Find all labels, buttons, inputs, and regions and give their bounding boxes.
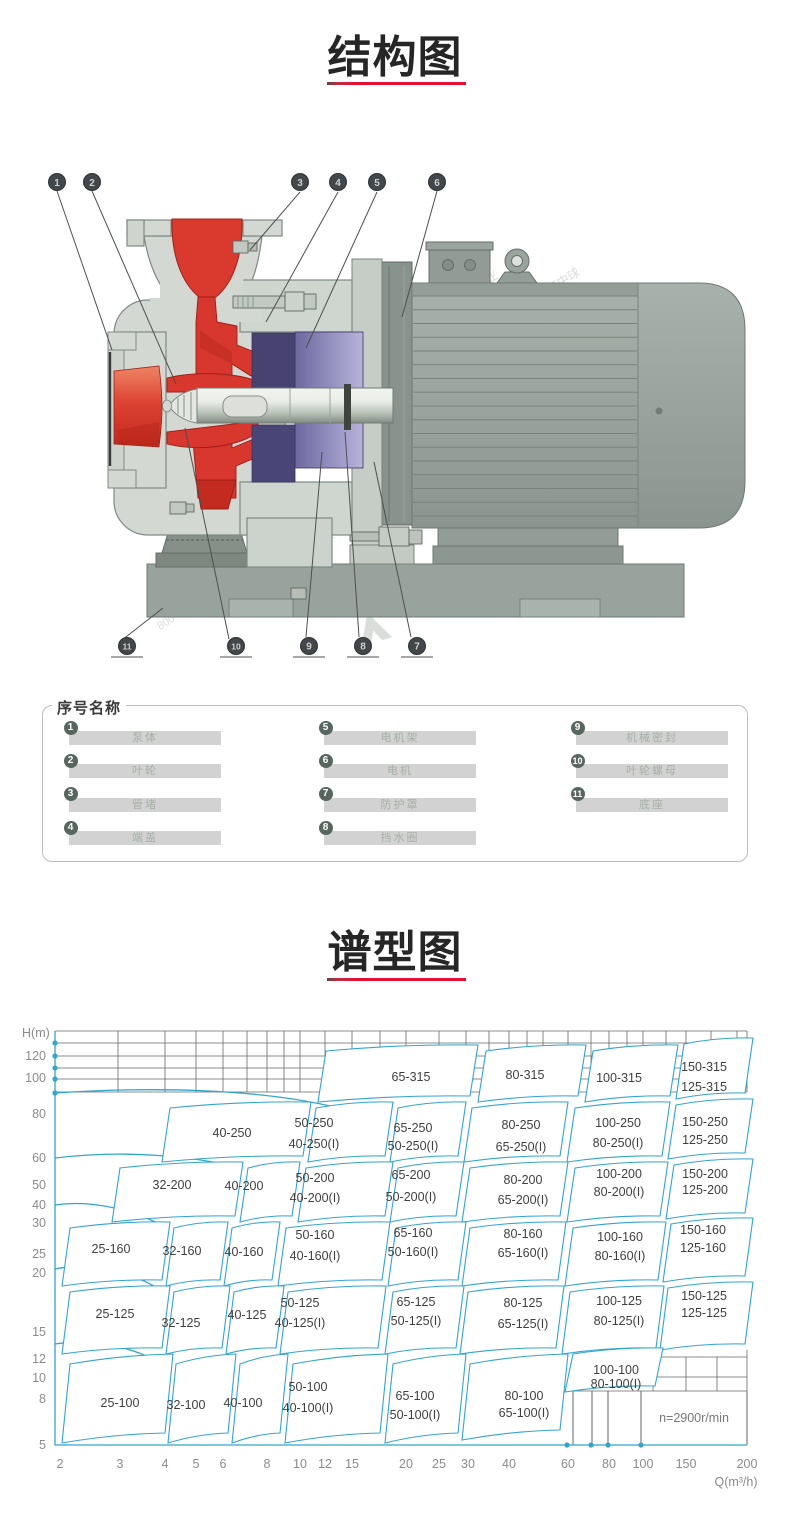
- svg-text:100-160: 100-160: [597, 1230, 643, 1244]
- svg-text:125-160: 125-160: [680, 1241, 726, 1255]
- svg-text:3: 3: [117, 1457, 124, 1471]
- svg-text:50-200(I): 50-200(I): [386, 1190, 437, 1204]
- svg-text:25-100: 25-100: [101, 1396, 140, 1410]
- svg-text:8: 8: [360, 642, 366, 653]
- svg-text:32-125: 32-125: [162, 1316, 201, 1330]
- svg-text:10: 10: [231, 642, 241, 652]
- svg-text:25-160: 25-160: [92, 1242, 131, 1256]
- svg-text:60: 60: [561, 1457, 575, 1471]
- svg-text:65-125: 65-125: [397, 1295, 436, 1309]
- svg-text:150-315: 150-315: [681, 1060, 727, 1074]
- svg-text:12: 12: [32, 1352, 46, 1366]
- svg-text:n=2900r/min: n=2900r/min: [659, 1411, 729, 1425]
- svg-text:80-250: 80-250: [502, 1118, 541, 1132]
- svg-text:6: 6: [220, 1457, 227, 1471]
- svg-text:80-160(I): 80-160(I): [595, 1249, 646, 1263]
- svg-text:200: 200: [737, 1457, 758, 1471]
- svg-text:50-100(I): 50-100(I): [390, 1408, 441, 1422]
- svg-text:50-125(I): 50-125(I): [391, 1314, 442, 1328]
- svg-text:100-315: 100-315: [596, 1071, 642, 1085]
- svg-text:60: 60: [32, 1151, 46, 1165]
- svg-text:80-250(I): 80-250(I): [593, 1136, 644, 1150]
- svg-text:80: 80: [602, 1457, 616, 1471]
- svg-text:100-250: 100-250: [595, 1116, 641, 1130]
- svg-text:65-100(I): 65-100(I): [499, 1406, 550, 1420]
- svg-text:30: 30: [461, 1457, 475, 1471]
- svg-text:80-100: 80-100: [505, 1389, 544, 1403]
- svg-text:80-200: 80-200: [504, 1173, 543, 1187]
- svg-text:40-200: 40-200: [225, 1179, 264, 1193]
- svg-text:80-125: 80-125: [504, 1296, 543, 1310]
- svg-text:6: 6: [434, 178, 440, 189]
- svg-text:65-160(I): 65-160(I): [498, 1246, 549, 1260]
- svg-text:80: 80: [32, 1107, 46, 1121]
- svg-text:5: 5: [374, 178, 380, 189]
- svg-text:12: 12: [318, 1457, 332, 1471]
- svg-text:40-250(I): 40-250(I): [289, 1137, 340, 1151]
- svg-text:100-200: 100-200: [596, 1167, 642, 1181]
- svg-text:65-160: 65-160: [394, 1226, 433, 1240]
- svg-text:5: 5: [39, 1438, 46, 1452]
- svg-text:20: 20: [32, 1266, 46, 1280]
- svg-text:50-250: 50-250: [295, 1116, 334, 1130]
- svg-text:50-100: 50-100: [289, 1380, 328, 1394]
- svg-text:50-125: 50-125: [281, 1296, 320, 1310]
- svg-text:11: 11: [123, 642, 132, 652]
- svg-text:40-125: 40-125: [228, 1308, 267, 1322]
- svg-text:15: 15: [32, 1325, 46, 1339]
- svg-text:80-125(I): 80-125(I): [594, 1314, 645, 1328]
- svg-text:50-160(I): 50-160(I): [388, 1245, 439, 1259]
- svg-text:40-200(I): 40-200(I): [290, 1191, 341, 1205]
- svg-text:80-315: 80-315: [506, 1068, 545, 1082]
- svg-text:4: 4: [335, 178, 341, 189]
- svg-text:Q(m³/h): Q(m³/h): [714, 1475, 757, 1489]
- svg-text:30: 30: [32, 1216, 46, 1230]
- svg-text:40-160(I): 40-160(I): [290, 1249, 341, 1263]
- svg-text:H(m): H(m): [22, 1026, 50, 1040]
- svg-text:40-160: 40-160: [225, 1245, 264, 1259]
- svg-text:125-200: 125-200: [682, 1183, 728, 1197]
- svg-text:80-200(I): 80-200(I): [594, 1185, 645, 1199]
- svg-text:25: 25: [32, 1247, 46, 1261]
- svg-text:4: 4: [162, 1457, 169, 1471]
- svg-text:32-200: 32-200: [153, 1178, 192, 1192]
- svg-text:2: 2: [57, 1457, 64, 1471]
- svg-text:40-100: 40-100: [224, 1396, 263, 1410]
- svg-text:8: 8: [264, 1457, 271, 1471]
- svg-text:10: 10: [32, 1371, 46, 1385]
- svg-text:40: 40: [502, 1457, 516, 1471]
- svg-text:50-200: 50-200: [296, 1171, 335, 1185]
- svg-text:20: 20: [399, 1457, 413, 1471]
- svg-text:9: 9: [306, 642, 312, 653]
- svg-text:40-125(I): 40-125(I): [275, 1316, 326, 1330]
- svg-text:50-160: 50-160: [296, 1228, 335, 1242]
- svg-text:65-250: 65-250: [394, 1121, 433, 1135]
- svg-text:1: 1: [54, 178, 60, 189]
- svg-text:125-250: 125-250: [682, 1133, 728, 1147]
- svg-text:100: 100: [25, 1071, 46, 1085]
- svg-text:5: 5: [193, 1457, 200, 1471]
- svg-text:40-100(I): 40-100(I): [283, 1401, 334, 1415]
- svg-text:80-100(I): 80-100(I): [591, 1377, 642, 1391]
- svg-text:120: 120: [25, 1049, 46, 1063]
- svg-text:40: 40: [32, 1198, 46, 1212]
- svg-text:8: 8: [39, 1392, 46, 1406]
- svg-text:100-125: 100-125: [596, 1294, 642, 1308]
- svg-text:150-200: 150-200: [682, 1167, 728, 1181]
- svg-text:100: 100: [633, 1457, 654, 1471]
- svg-text:65-100: 65-100: [396, 1389, 435, 1403]
- svg-text:150: 150: [676, 1457, 697, 1471]
- svg-text:150-125: 150-125: [681, 1289, 727, 1303]
- svg-text:65-315: 65-315: [392, 1070, 431, 1084]
- svg-text:80-160: 80-160: [504, 1227, 543, 1241]
- svg-text:150-160: 150-160: [680, 1223, 726, 1237]
- svg-text:15: 15: [345, 1457, 359, 1471]
- svg-text:50: 50: [32, 1178, 46, 1192]
- svg-text:32-160: 32-160: [163, 1244, 202, 1258]
- svg-text:7: 7: [414, 642, 420, 653]
- svg-text:100-100: 100-100: [593, 1363, 639, 1377]
- svg-text:125-125: 125-125: [681, 1306, 727, 1320]
- svg-text:40-250: 40-250: [213, 1126, 252, 1140]
- svg-text:2: 2: [89, 178, 95, 189]
- svg-text:65-200(I): 65-200(I): [498, 1193, 549, 1207]
- svg-text:25: 25: [432, 1457, 446, 1471]
- svg-text:50-250(I): 50-250(I): [388, 1139, 439, 1153]
- svg-text:32-100: 32-100: [167, 1398, 206, 1412]
- svg-text:25-125: 25-125: [96, 1307, 135, 1321]
- svg-text:65-200: 65-200: [392, 1168, 431, 1182]
- svg-text:3: 3: [297, 178, 303, 189]
- svg-text:65-250(I): 65-250(I): [496, 1140, 547, 1154]
- svg-text:65-125(I): 65-125(I): [498, 1317, 549, 1331]
- svg-text:10: 10: [293, 1457, 307, 1471]
- svg-text:125-315: 125-315: [681, 1080, 727, 1094]
- svg-text:150-250: 150-250: [682, 1115, 728, 1129]
